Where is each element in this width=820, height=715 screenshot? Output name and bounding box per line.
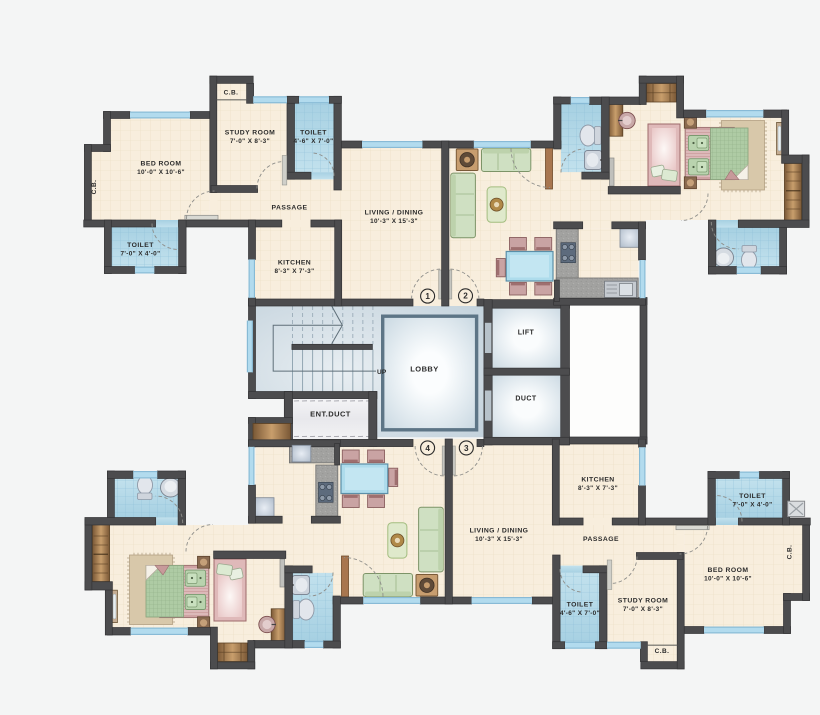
svg-text:4'-6" X 7'-0": 4'-6" X 7'-0" bbox=[294, 138, 334, 145]
svg-text:10'-3" X 15'-3": 10'-3" X 15'-3" bbox=[475, 536, 523, 543]
svg-text:8'-3" X 7'-3": 8'-3" X 7'-3" bbox=[578, 485, 618, 492]
svg-text:2: 2 bbox=[463, 292, 468, 301]
svg-text:C.B.: C.B. bbox=[91, 180, 98, 195]
svg-text:KITCHEN: KITCHEN bbox=[278, 260, 311, 267]
svg-text:4: 4 bbox=[425, 444, 430, 453]
svg-text:STUDY ROOM: STUDY ROOM bbox=[225, 130, 275, 137]
svg-text:10'-3" X 15'-3": 10'-3" X 15'-3" bbox=[370, 218, 418, 225]
svg-text:C.B.: C.B. bbox=[655, 648, 670, 655]
svg-text:TOILET: TOILET bbox=[567, 602, 594, 609]
svg-text:UP: UP bbox=[377, 369, 387, 376]
svg-text:LOBBY: LOBBY bbox=[410, 365, 439, 374]
svg-text:10'-0" X 10'-6": 10'-0" X 10'-6" bbox=[137, 169, 185, 176]
svg-text:C.B.: C.B. bbox=[224, 90, 239, 97]
svg-text:10'-0" X 10'-6": 10'-0" X 10'-6" bbox=[704, 575, 752, 582]
svg-text:BED ROOM: BED ROOM bbox=[141, 161, 182, 168]
svg-text:7'-0" X 8'-3": 7'-0" X 8'-3" bbox=[623, 606, 663, 613]
svg-text:1: 1 bbox=[425, 292, 430, 301]
svg-text:ENT.DUCT: ENT.DUCT bbox=[310, 410, 351, 419]
svg-text:BED ROOM: BED ROOM bbox=[708, 567, 749, 574]
svg-text:LIVING / DINING: LIVING / DINING bbox=[365, 210, 424, 217]
svg-text:7'-0" X 4'-0": 7'-0" X 4'-0" bbox=[121, 250, 161, 257]
svg-text:TOILET: TOILET bbox=[127, 242, 154, 249]
svg-text:C.B.: C.B. bbox=[787, 545, 794, 560]
svg-text:PASSAGE: PASSAGE bbox=[583, 536, 619, 543]
svg-text:DUCT: DUCT bbox=[515, 396, 537, 403]
svg-text:LIVING / DINING: LIVING / DINING bbox=[470, 528, 529, 535]
svg-text:STUDY ROOM: STUDY ROOM bbox=[618, 598, 668, 605]
svg-text:8'-3" X 7'-3": 8'-3" X 7'-3" bbox=[275, 268, 315, 275]
svg-text:TOILET: TOILET bbox=[739, 493, 766, 500]
svg-text:KITCHEN: KITCHEN bbox=[581, 477, 614, 484]
svg-text:7'-0" X 8'-3": 7'-0" X 8'-3" bbox=[230, 138, 270, 145]
svg-text:PASSAGE: PASSAGE bbox=[272, 205, 308, 212]
svg-text:7'-0" X 4'-0": 7'-0" X 4'-0" bbox=[733, 501, 773, 508]
svg-text:LIFT: LIFT bbox=[518, 330, 535, 337]
svg-text:4'-6" X 7'-0": 4'-6" X 7'-0" bbox=[560, 610, 600, 617]
svg-text:TOILET: TOILET bbox=[300, 130, 327, 137]
svg-text:3: 3 bbox=[464, 444, 469, 453]
